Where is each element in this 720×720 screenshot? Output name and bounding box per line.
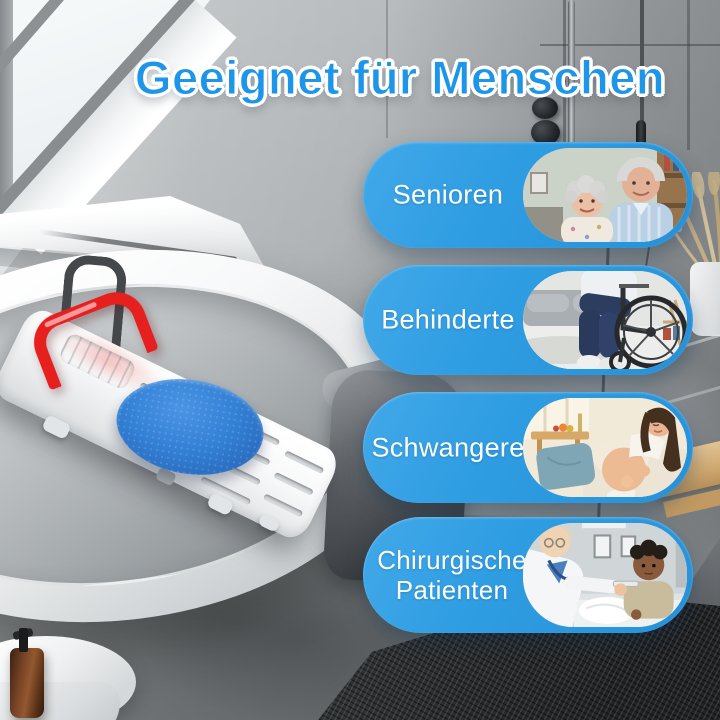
audience-pill-senioren: Senioren [363,142,693,248]
pill-label: Schwangere [369,432,527,463]
pill-label: Chirurgische Patienten [369,545,535,605]
pill-label: Behinderte [369,304,527,335]
photo-schwangere [523,398,687,497]
audience-pill-behinderte: Behinderte [363,265,693,375]
product-marketing-image: Geeignet für Menschen Senioren [0,0,720,720]
soap-bottle [10,648,44,718]
tile-grout-line [540,44,720,46]
photo-chirurgische-patienten [523,523,687,627]
page-title: Geeignet für Menschen [90,50,710,105]
pill-label: Senioren [369,179,527,210]
audience-pill-chirurgische-patienten: Chirurgische Patienten [363,517,693,633]
audience-pill-schwangere: Schwangere [363,392,693,503]
photo-behinderte [523,271,687,369]
photo-senioren [523,148,687,242]
plant-vase [690,262,720,336]
soap-bottle-pump-stem [19,628,28,652]
